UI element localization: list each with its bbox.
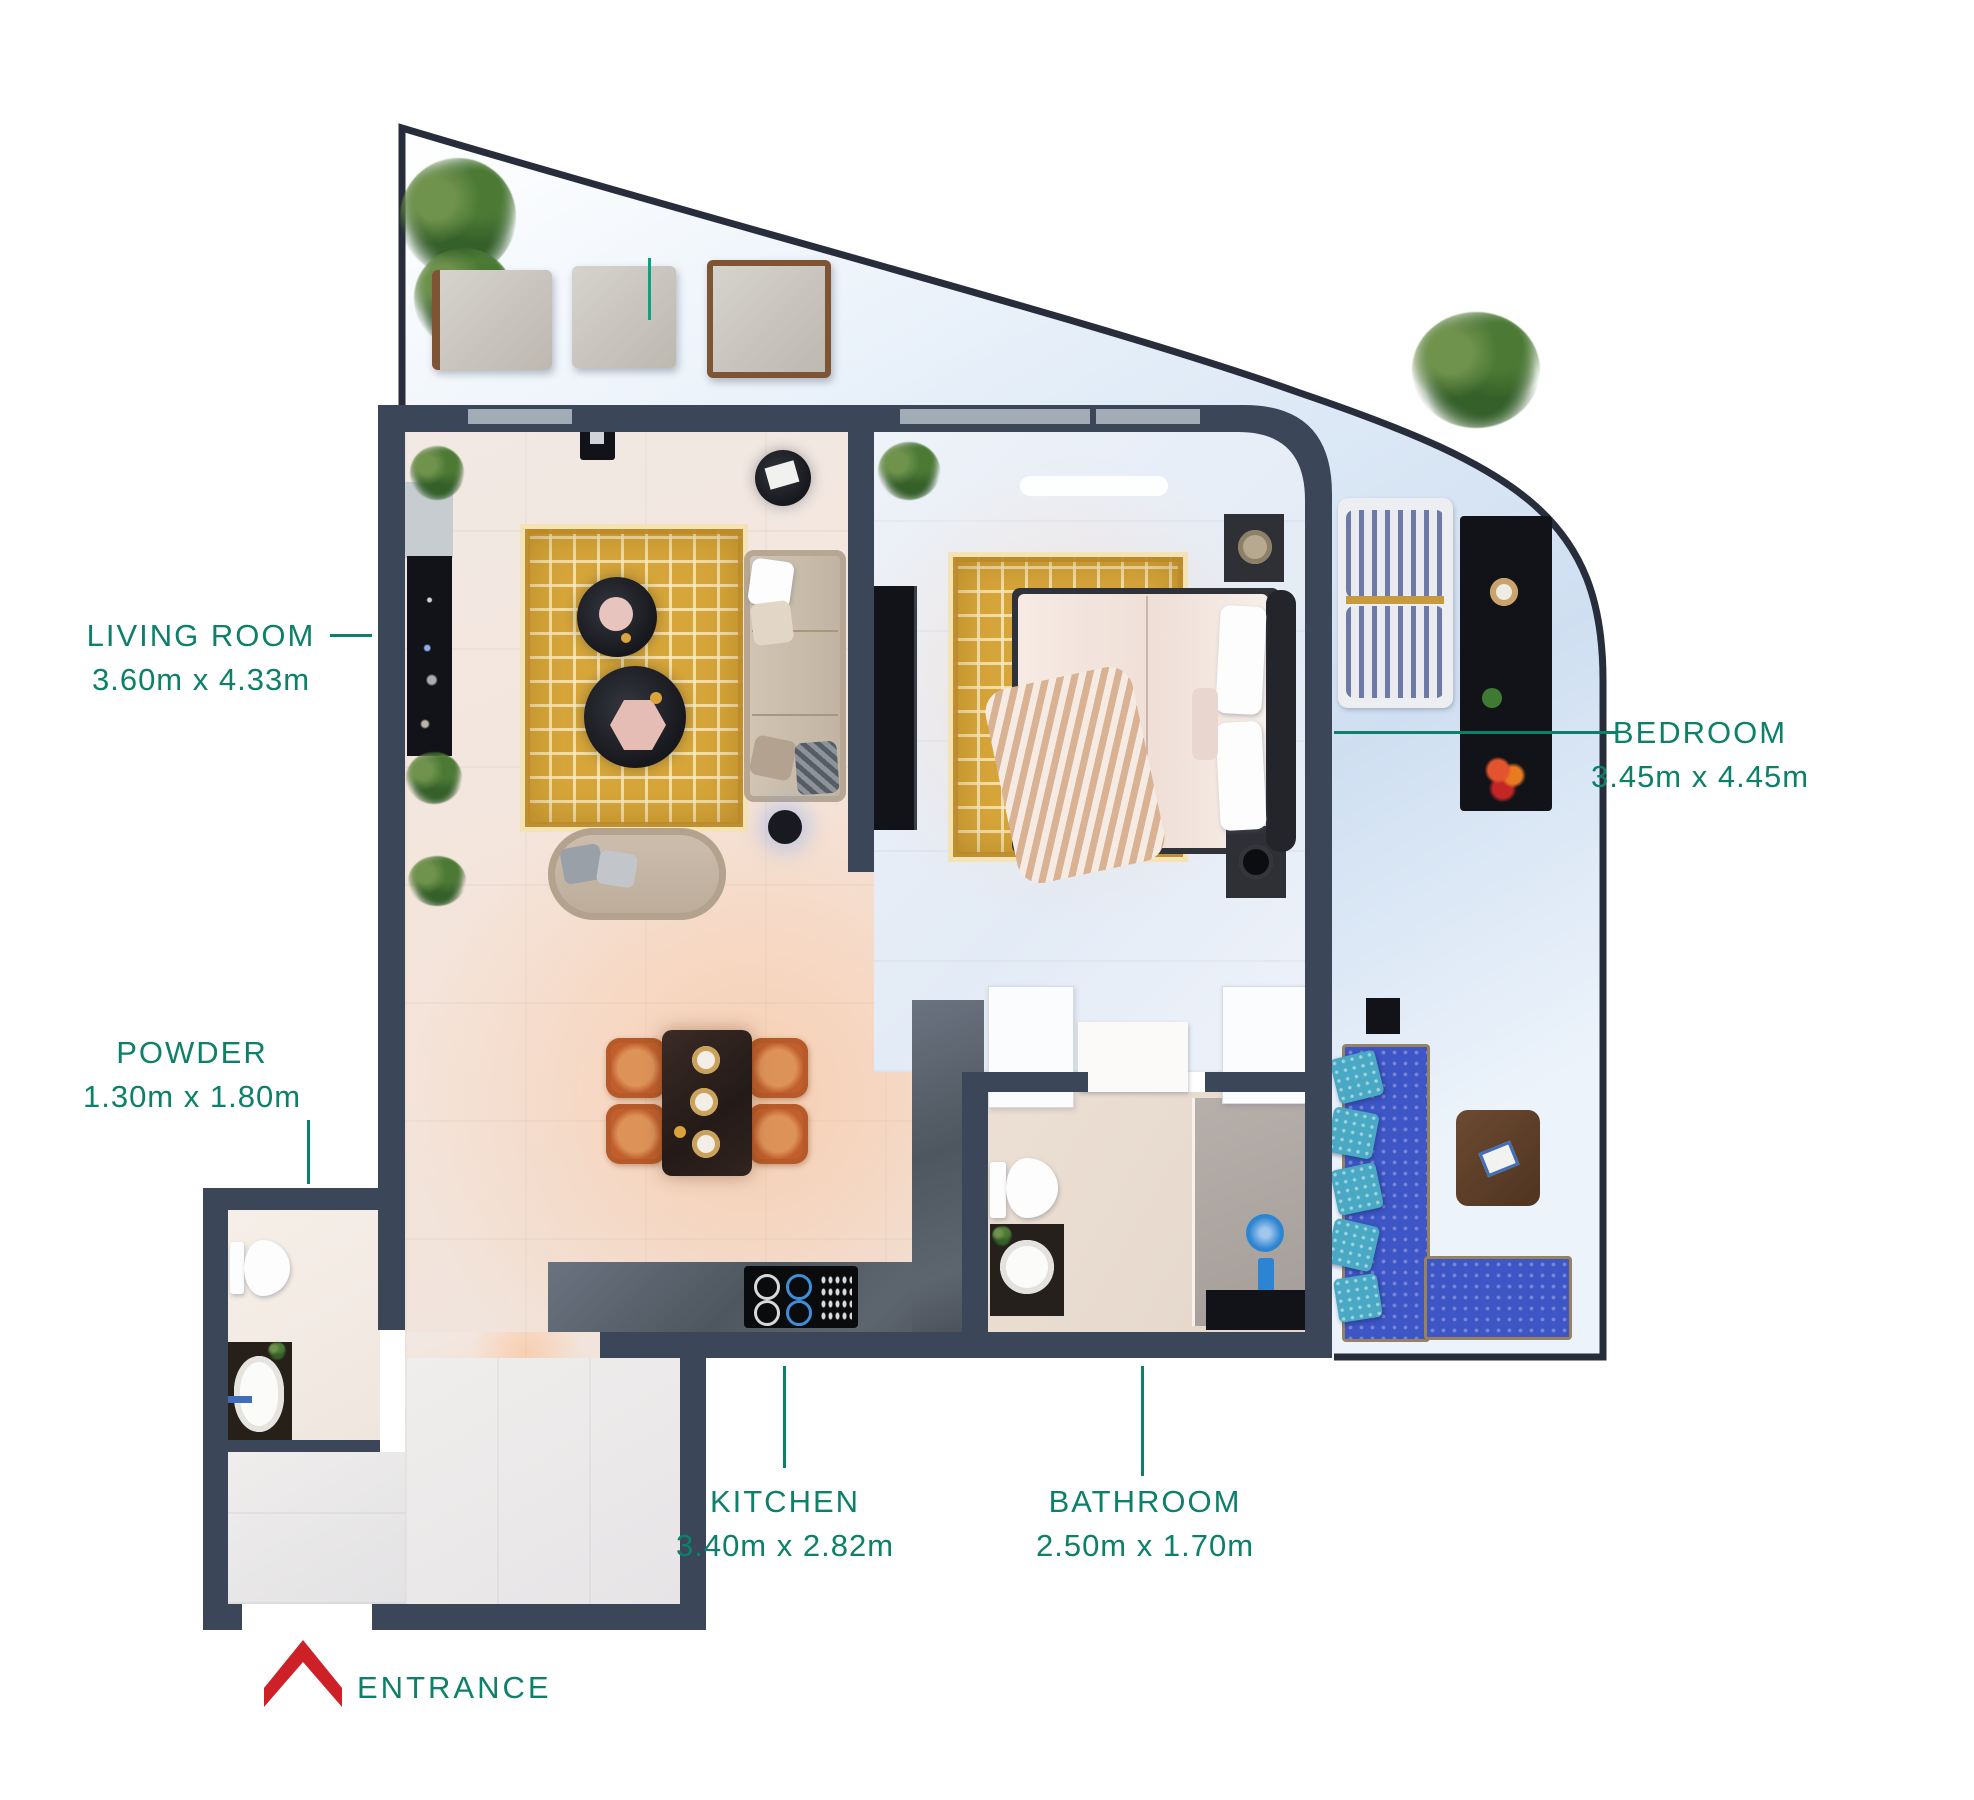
room-name: BATHROOM <box>975 1480 1315 1524</box>
label-bathroom: BATHROOM 2.50m x 1.70m <box>975 1480 1315 1568</box>
label-kitchen: KITCHEN 3.40m x 2.82m <box>615 1480 955 1568</box>
wall-partition-bedroom <box>848 432 874 872</box>
leader-bedroom <box>1334 731 1618 734</box>
room-dims: 3.45m x 4.45m <box>1530 755 1870 799</box>
leader-living-room <box>330 634 372 637</box>
leader-powder <box>307 1120 310 1184</box>
label-entrance: ENTRANCE <box>357 1671 552 1705</box>
wall-entry-bottom <box>203 1604 242 1630</box>
room-dims: 2.50m x 1.70m <box>975 1524 1315 1568</box>
label-bedroom: BEDROOM 3.45m x 4.45m <box>1530 711 1870 799</box>
room-name: KITCHEN <box>615 1480 955 1524</box>
floor-plan-canvas: LIVING ROOM 3.60m x 4.33m BEDROOM 3.45m … <box>0 0 1974 1800</box>
window-glazing <box>468 409 572 424</box>
window-glazing <box>900 409 1090 424</box>
room-name: POWDER <box>22 1031 362 1075</box>
wall-powder-bottom <box>228 1440 380 1452</box>
wall-bathroom-top <box>962 1072 1088 1092</box>
label-living-room: LIVING ROOM 3.60m x 4.33m <box>31 614 371 702</box>
wall-powder-left <box>203 1188 228 1630</box>
wall-bathroom-left <box>962 1072 988 1358</box>
window-glazing <box>1096 409 1200 424</box>
leader-bathroom <box>1141 1366 1144 1476</box>
wall-entry-bottom <box>372 1604 706 1630</box>
leader-kitchen <box>783 1366 786 1468</box>
room-dims: 3.40m x 2.82m <box>615 1524 955 1568</box>
wall-bathroom-top <box>1205 1072 1332 1092</box>
room-name: LIVING ROOM <box>31 614 371 658</box>
label-powder: POWDER 1.30m x 1.80m <box>22 1031 362 1119</box>
entrance-arrow-icon <box>255 1632 355 1716</box>
wall-powder-top <box>203 1188 405 1210</box>
room-dims: 1.30m x 1.80m <box>22 1075 362 1119</box>
room-dims: 3.60m x 4.33m <box>31 658 371 702</box>
